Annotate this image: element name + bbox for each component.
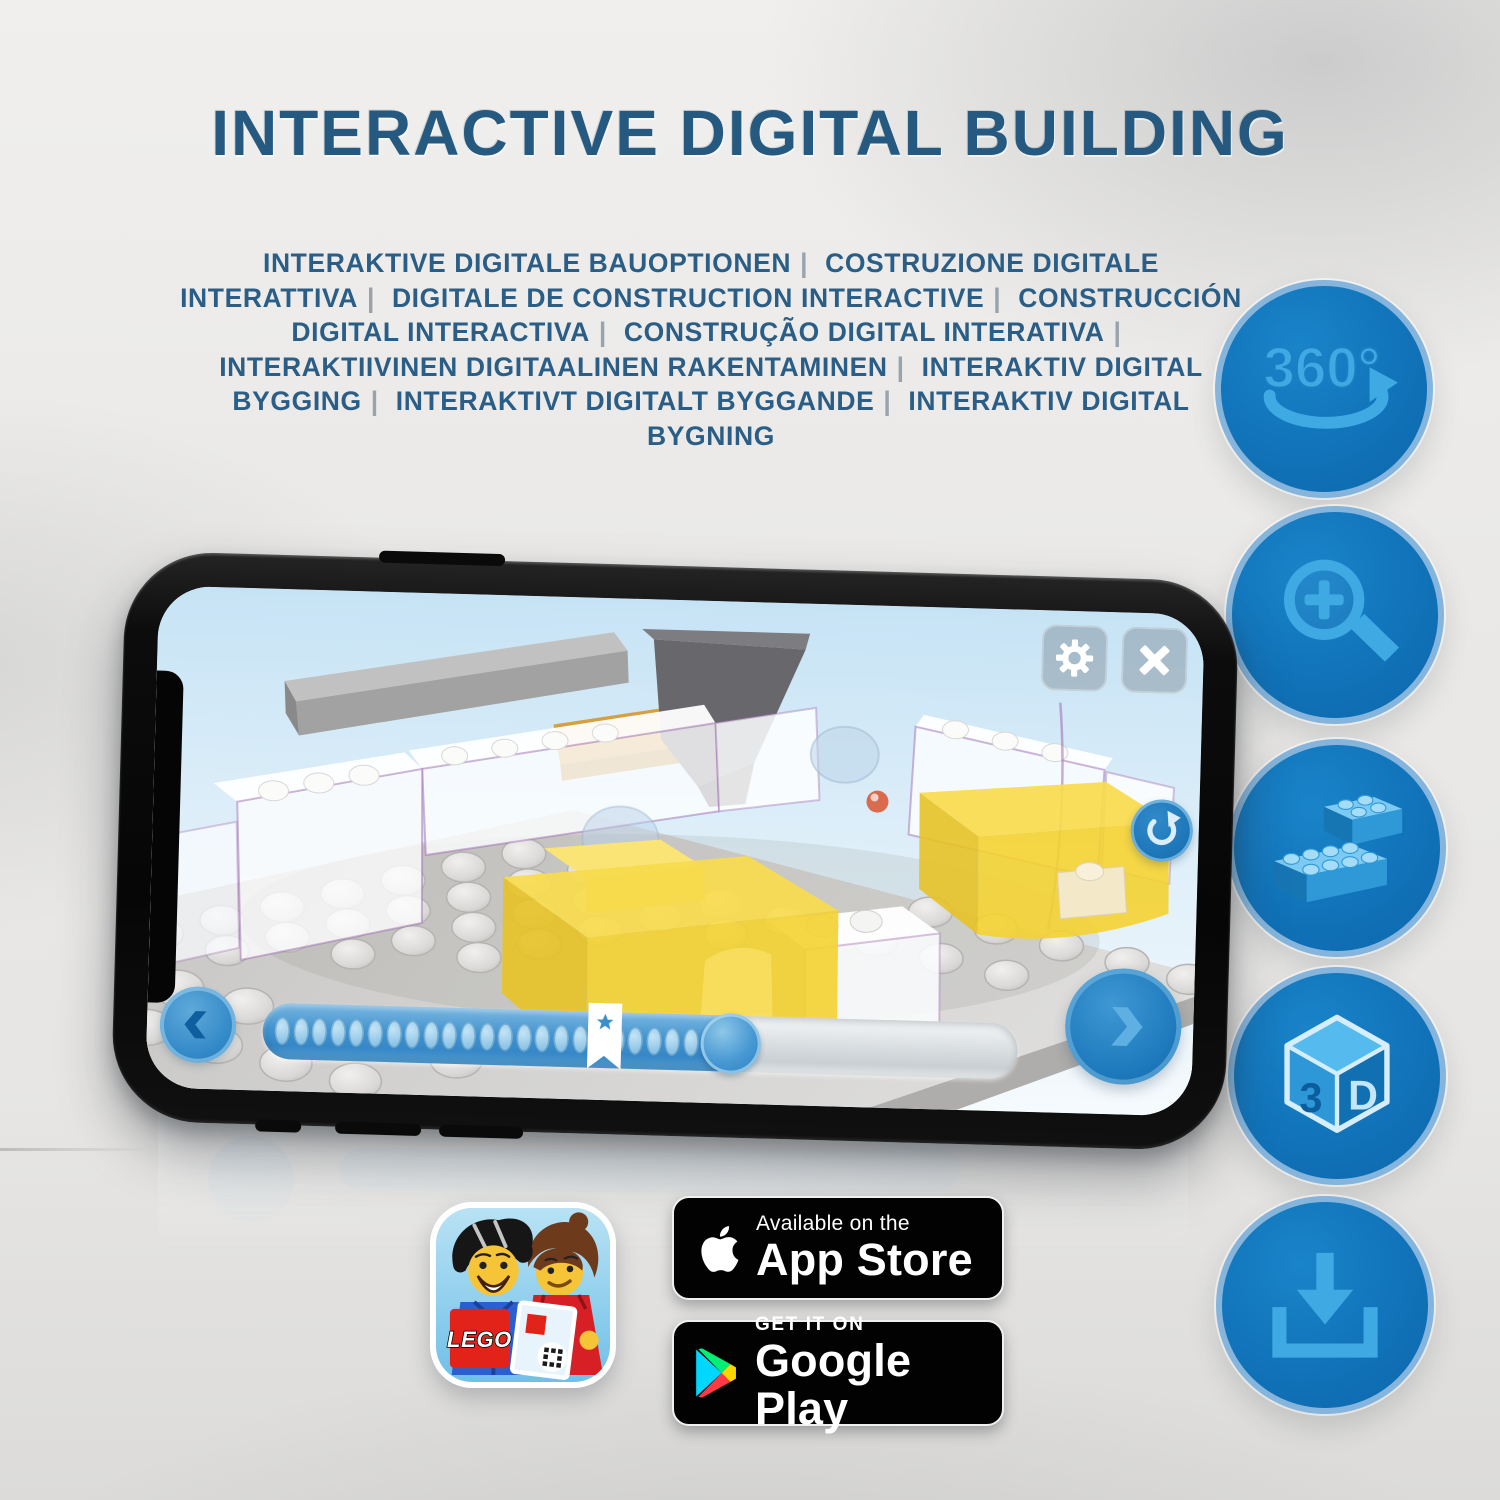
- page-title: INTERACTIVE DIGITAL BUILDING: [0, 96, 1500, 170]
- feature-badge-3d: 3 D: [1228, 967, 1446, 1185]
- lego-app-artwork: LEGO: [436, 1208, 610, 1382]
- app-store-tagline: Available on the: [756, 1212, 973, 1236]
- cube-3d-icon: 3 D: [1261, 1000, 1413, 1152]
- close-icon: [1129, 635, 1180, 686]
- svg-text:360°: 360°: [1263, 336, 1380, 399]
- play-triangle-icon: [692, 1344, 739, 1402]
- pipe-separator: |: [1105, 317, 1131, 347]
- lego-app-icon[interactable]: LEGO: [430, 1202, 616, 1388]
- app-store-badge[interactable]: Available on the App Store: [672, 1196, 1004, 1300]
- pipe-separator: |: [362, 386, 388, 416]
- chevron-right-icon: [1096, 999, 1151, 1054]
- lego-logo: LEGO: [447, 1309, 512, 1368]
- feature-badge-zoom: [1226, 506, 1444, 724]
- star-icon: [595, 1012, 616, 1033]
- reset-rotation-button[interactable]: [1130, 799, 1194, 863]
- rotate-360-icon: 360°: [1248, 313, 1400, 465]
- zoom-in-magnifier-icon: [1259, 539, 1411, 691]
- pipe-separator: |: [358, 283, 384, 313]
- pipe-separator: |: [791, 248, 817, 278]
- feature-badge-bricks: [1228, 739, 1446, 957]
- google-play-name: Google Play: [755, 1337, 992, 1433]
- subtitle-part: INTERAKTIIVINEN DIGITAALINEN RAKENTAMINE…: [219, 352, 887, 382]
- google-play-badge[interactable]: GET IT ON Google Play: [672, 1320, 1004, 1426]
- svg-text:D: D: [1348, 1073, 1378, 1119]
- svg-text:3: 3: [1299, 1075, 1322, 1121]
- download-icon: [1249, 1229, 1401, 1381]
- phone-side-button: [255, 1119, 301, 1132]
- gear-icon: [1050, 633, 1099, 682]
- subtitle-part: CONSTRUÇÃO DIGITAL INTERATIVA: [624, 317, 1105, 347]
- feature-badge-360: 360°: [1215, 280, 1433, 498]
- phone-side-button: [379, 551, 505, 567]
- subtitle-part: DIGITALE DE CONSTRUCTION INTERACTIVE: [392, 283, 984, 313]
- pipe-separator: |: [590, 317, 616, 347]
- phone-volume-button: [439, 1125, 523, 1139]
- phone-device: [110, 551, 1239, 1152]
- rotate-reset-icon: [1138, 807, 1185, 854]
- app-screen: [145, 585, 1205, 1116]
- google-play-tagline: GET IT ON: [755, 1313, 992, 1337]
- feature-badge-download: [1216, 1196, 1434, 1414]
- close-button[interactable]: [1121, 626, 1189, 694]
- pipe-separator: |: [874, 386, 900, 416]
- apple-icon: [696, 1218, 740, 1278]
- floor-line: [0, 1148, 150, 1151]
- phone-volume-button: [335, 1122, 421, 1136]
- stacked-bricks-icon: [1261, 772, 1413, 924]
- pipe-separator: |: [888, 352, 914, 382]
- subtitle-translations: INTERAKTIVE DIGITALE BAUOPTIONEN| COSTRU…: [178, 246, 1244, 453]
- svg-text:LEGO: LEGO: [447, 1327, 512, 1352]
- subtitle-part: INTERAKTIVE DIGITALE BAUOPTIONEN: [263, 248, 791, 278]
- settings-button[interactable]: [1041, 624, 1109, 692]
- instruction-card: [512, 1302, 576, 1378]
- chevron-left-icon: [178, 1005, 217, 1044]
- app-store-name: App Store: [756, 1236, 973, 1284]
- progress-knob[interactable]: [700, 1013, 762, 1075]
- pipe-separator: |: [984, 283, 1010, 313]
- subtitle-part: INTERAKTIVT DIGITALT BYGGANDE: [396, 386, 875, 416]
